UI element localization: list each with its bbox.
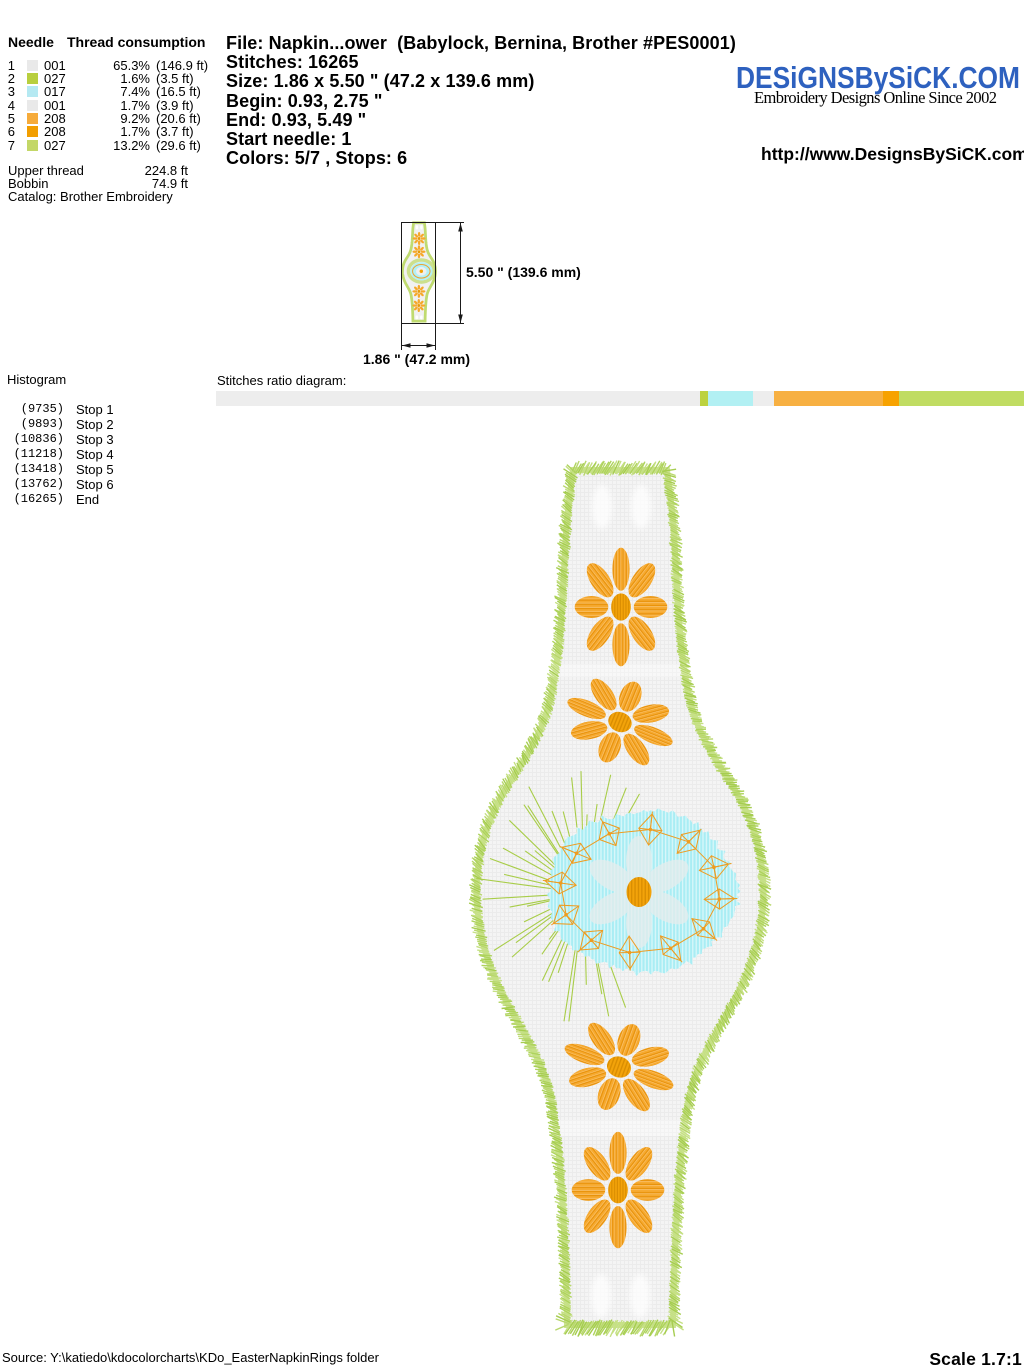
svg-text:1.86 " (47.2 mm): 1.86 " (47.2 mm): [363, 351, 470, 367]
svg-text:5.50 " (139.6 mm): 5.50 " (139.6 mm): [466, 264, 581, 280]
